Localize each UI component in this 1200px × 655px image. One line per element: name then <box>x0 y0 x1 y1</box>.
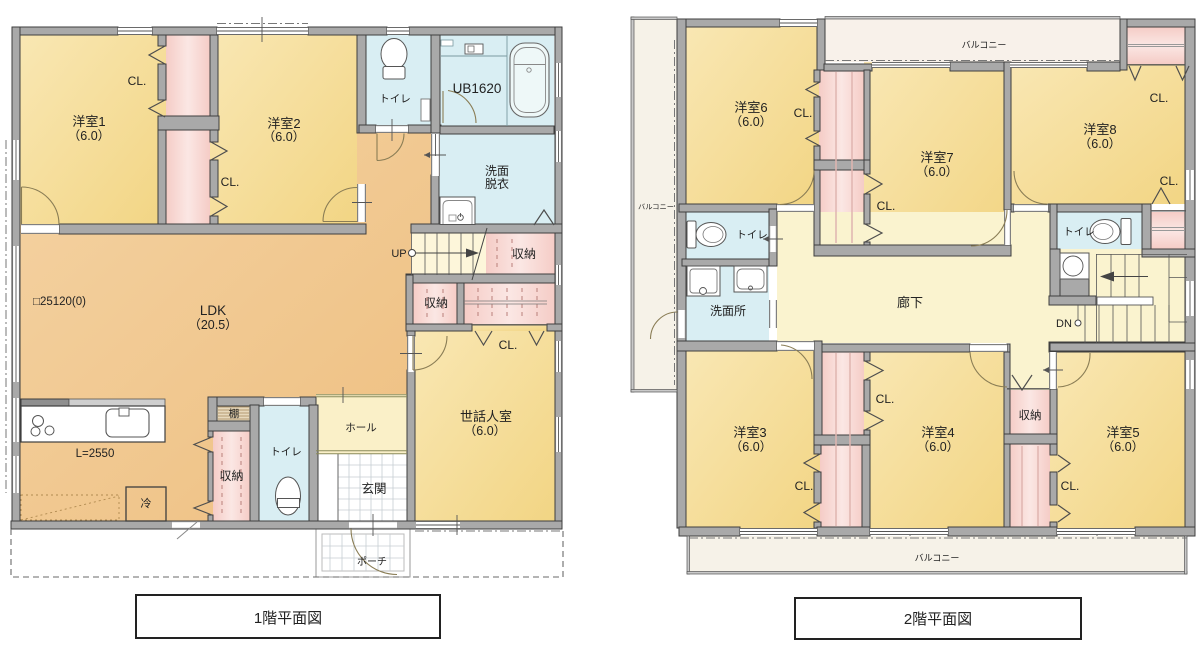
svg-text:洗面: 洗面 <box>485 164 509 178</box>
svg-text:CL.: CL. <box>128 74 147 88</box>
svg-text:CL.: CL. <box>794 106 813 120</box>
svg-text:ポーチ: ポーチ <box>357 556 387 568</box>
svg-text:（6.0）: （6.0） <box>464 424 506 438</box>
svg-text:トイレ: トイレ <box>1063 226 1095 238</box>
svg-text:（6.0）: （6.0） <box>1102 440 1144 454</box>
svg-text:トイレ: トイレ <box>379 93 411 105</box>
svg-text:CL.: CL. <box>877 199 896 213</box>
svg-text:洋室1: 洋室1 <box>72 114 105 129</box>
svg-text:UB1620: UB1620 <box>453 81 502 96</box>
svg-text:洋室7: 洋室7 <box>920 150 953 165</box>
svg-text:世話人室: 世話人室 <box>460 409 512 424</box>
svg-text:1階平面図: 1階平面図 <box>254 610 322 627</box>
svg-text:（6.0）: （6.0） <box>916 165 958 179</box>
svg-text:UP: UP <box>391 248 406 260</box>
svg-text:□25120(0): □25120(0) <box>33 296 86 308</box>
svg-text:脱衣: 脱衣 <box>485 176 509 191</box>
svg-text:（6.0）: （6.0） <box>917 440 959 454</box>
svg-text:LDK: LDK <box>200 303 226 318</box>
svg-text:DN: DN <box>1056 318 1072 330</box>
svg-text:2階平面図: 2階平面図 <box>904 611 972 628</box>
svg-text:CL.: CL. <box>1061 479 1080 493</box>
svg-text:収納: 収納 <box>219 469 243 483</box>
svg-text:（20.5）: （20.5） <box>188 318 237 332</box>
svg-text:玄関: 玄関 <box>361 481 386 496</box>
svg-text:トイレ: トイレ <box>270 446 302 458</box>
svg-text:洋室4: 洋室4 <box>921 425 954 440</box>
svg-text:洋室3: 洋室3 <box>733 425 766 440</box>
svg-text:冷: 冷 <box>141 497 152 510</box>
svg-text:バルコニー: バルコニー <box>962 40 1007 50</box>
svg-text:バルコニー: バルコニー <box>638 203 674 211</box>
svg-text:洋室5: 洋室5 <box>1106 425 1139 440</box>
svg-text:洋室2: 洋室2 <box>267 116 300 131</box>
svg-text:（6.0）: （6.0） <box>1079 137 1121 151</box>
svg-text:トイレ: トイレ <box>736 229 768 241</box>
svg-text:収納: 収納 <box>424 296 448 310</box>
svg-text:バルコニー: バルコニー <box>915 553 960 563</box>
svg-text:洋室8: 洋室8 <box>1083 122 1116 137</box>
svg-text:収納: 収納 <box>1019 409 1042 422</box>
svg-text:（6.0）: （6.0） <box>263 130 305 144</box>
svg-text:CL.: CL. <box>795 479 814 493</box>
svg-text:（6.0）: （6.0） <box>68 129 110 143</box>
svg-text:CL.: CL. <box>876 392 895 406</box>
svg-text:（6.0）: （6.0） <box>730 440 772 454</box>
svg-text:ホール: ホール <box>345 422 377 434</box>
svg-text:廊下: 廊下 <box>897 295 923 310</box>
svg-text:CL.: CL. <box>1160 174 1179 188</box>
svg-text:棚: 棚 <box>229 407 240 420</box>
svg-text:洗面所: 洗面所 <box>710 304 746 318</box>
svg-text:洋室6: 洋室6 <box>734 100 767 115</box>
svg-text:L=2550: L=2550 <box>76 448 115 460</box>
svg-text:収納: 収納 <box>512 247 536 261</box>
svg-text:CL.: CL. <box>221 175 240 189</box>
svg-text:CL.: CL. <box>1150 91 1169 105</box>
svg-text:（6.0）: （6.0） <box>730 115 772 129</box>
svg-text:CL.: CL. <box>499 338 518 352</box>
